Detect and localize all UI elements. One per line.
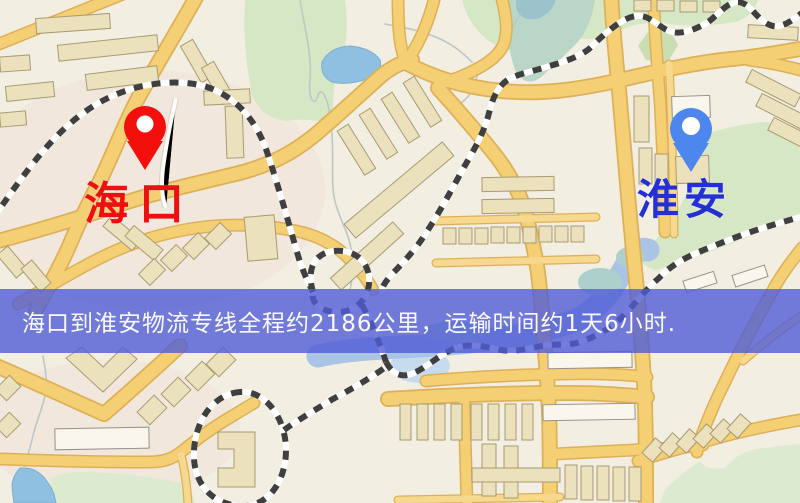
buildings-part xyxy=(634,96,649,142)
buildings-part xyxy=(629,467,641,501)
buildings-part xyxy=(565,465,577,499)
origin-city-label: 海口 xyxy=(84,181,194,226)
buildings-part xyxy=(0,55,31,72)
buildings-part xyxy=(507,227,520,243)
buildings-part xyxy=(57,35,158,61)
buildings-part xyxy=(434,404,445,440)
buildings-part xyxy=(451,404,462,440)
road-fills-part-part xyxy=(436,259,596,263)
buildings-part xyxy=(539,226,552,242)
buildings-part xyxy=(482,176,554,191)
road-fills-part-part xyxy=(398,497,560,500)
road-fills-part-part xyxy=(464,399,467,503)
buildings-part xyxy=(522,404,533,440)
buildings-part xyxy=(472,468,560,482)
buildings-part xyxy=(36,13,111,33)
buildings-part xyxy=(555,226,568,242)
buildings-part xyxy=(491,227,504,243)
buildings-part xyxy=(571,226,584,242)
buildings-part xyxy=(244,215,278,261)
buildings-part xyxy=(505,404,516,440)
buildings-part xyxy=(482,198,554,213)
road-fills-part-part xyxy=(436,217,596,221)
map-screenshot: 海口 淮安 海口到淮安物流专线全程约2186公里，运输时间约1天6小时. xyxy=(0,0,800,503)
road-fills-part-part xyxy=(388,393,647,399)
buildings-part xyxy=(732,265,768,287)
destination-pin-icon-part xyxy=(682,117,700,135)
destination-city-label: 淮安 xyxy=(637,179,731,221)
origin-pin-icon-part xyxy=(137,116,154,133)
buildings-part xyxy=(634,0,651,11)
map-canvas xyxy=(0,0,800,503)
buildings-part xyxy=(400,404,411,440)
buildings-part xyxy=(680,1,697,12)
buildings-part xyxy=(543,403,635,421)
buildings-part xyxy=(55,427,149,450)
buildings-part xyxy=(475,228,488,244)
buildings-part xyxy=(548,351,632,368)
route-info-text: 海口到淮安物流专线全程约2186公里，运输时间约1天6小时. xyxy=(0,304,676,338)
buildings-part xyxy=(523,227,536,243)
buildings-part xyxy=(597,466,609,500)
buildings-part xyxy=(657,0,674,11)
buildings-part xyxy=(417,404,428,440)
buildings-part xyxy=(581,466,593,500)
buildings-part xyxy=(613,467,625,501)
buildings-part xyxy=(0,111,27,127)
buildings-part xyxy=(459,228,472,244)
buildings-part xyxy=(488,404,499,440)
route-info-banner: 海口到淮安物流专线全程约2186公里，运输时间约1天6小时. xyxy=(0,289,800,353)
buildings-part xyxy=(225,106,244,159)
buildings-part xyxy=(471,404,482,440)
buildings-part xyxy=(443,228,456,244)
